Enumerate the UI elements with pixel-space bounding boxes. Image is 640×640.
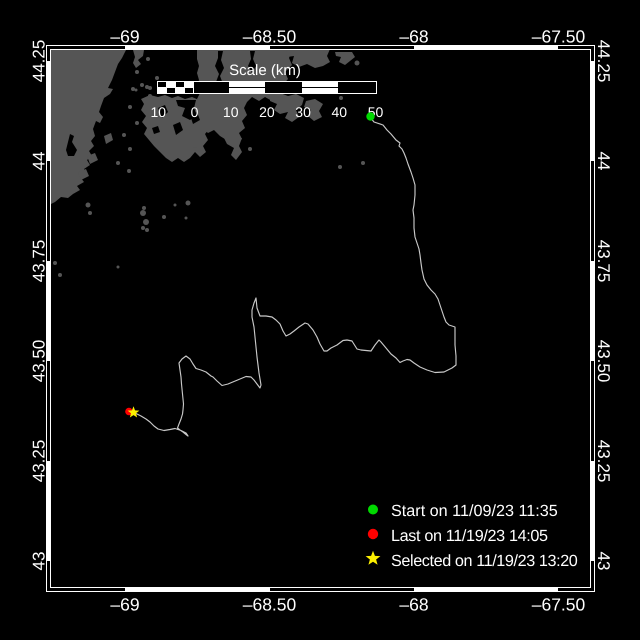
svg-text:44: 44	[594, 152, 613, 171]
svg-text:10: 10	[223, 104, 239, 120]
svg-text:43.75: 43.75	[30, 240, 49, 283]
svg-text:43.25: 43.25	[594, 440, 613, 483]
svg-text:–68.50: –68.50	[243, 27, 297, 47]
svg-text:–68: –68	[399, 595, 428, 615]
svg-text:40: 40	[332, 104, 348, 120]
svg-text:–69: –69	[110, 595, 139, 615]
svg-text:43.50: 43.50	[30, 340, 49, 383]
svg-text:43.75: 43.75	[594, 240, 613, 283]
svg-text:20: 20	[259, 104, 275, 120]
svg-text:43.25: 43.25	[30, 440, 49, 483]
svg-text:–68: –68	[399, 27, 428, 47]
svg-text:43.50: 43.50	[594, 340, 613, 383]
svg-text:43: 43	[30, 552, 49, 571]
svg-text:Selected on 11/19/23 13:20: Selected on 11/19/23 13:20	[391, 552, 578, 570]
svg-text:30: 30	[295, 104, 311, 120]
svg-text:44.25: 44.25	[30, 40, 49, 83]
svg-text:Last on 11/19/23 14:05: Last on 11/19/23 14:05	[391, 527, 548, 545]
svg-text:44: 44	[30, 152, 49, 171]
svg-text:–68.50: –68.50	[243, 595, 297, 615]
svg-text:–67.50: –67.50	[532, 595, 586, 615]
svg-text:–67.50: –67.50	[532, 27, 586, 47]
svg-text:44.25: 44.25	[594, 40, 613, 83]
svg-text:10: 10	[151, 104, 167, 120]
svg-text:–69: –69	[110, 27, 139, 47]
svg-text:0: 0	[191, 104, 199, 120]
svg-text:43: 43	[594, 552, 613, 571]
svg-text:Start on 11/09/23 11:35: Start on 11/09/23 11:35	[391, 502, 558, 520]
svg-text:Scale (km): Scale (km)	[229, 62, 301, 79]
